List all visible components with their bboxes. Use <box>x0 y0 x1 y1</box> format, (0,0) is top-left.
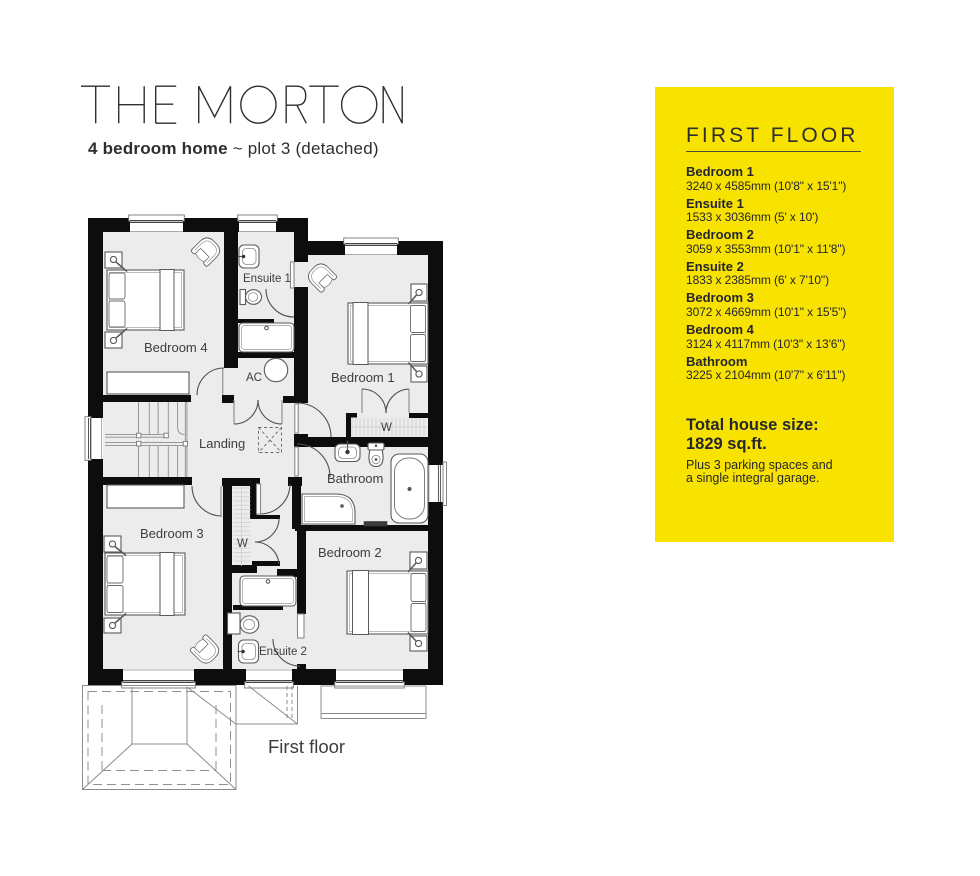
svg-text:Ensuite 2: Ensuite 2 <box>259 646 307 658</box>
svg-text:First floor: First floor <box>268 736 345 757</box>
svg-text:W: W <box>381 422 392 434</box>
svg-text:Landing: Landing <box>199 436 245 451</box>
svg-text:Bedroom 3: Bedroom 3 <box>140 526 204 541</box>
svg-text:Bedroom 1: Bedroom 1 <box>331 370 395 385</box>
svg-text:W: W <box>237 538 248 550</box>
svg-text:Bedroom 4: Bedroom 4 <box>144 340 208 355</box>
svg-text:Ensuite 1: Ensuite 1 <box>243 273 291 285</box>
svg-text:Bedroom 2: Bedroom 2 <box>318 545 382 560</box>
svg-text:AC: AC <box>246 372 262 384</box>
svg-text:Bathroom: Bathroom <box>327 471 383 486</box>
